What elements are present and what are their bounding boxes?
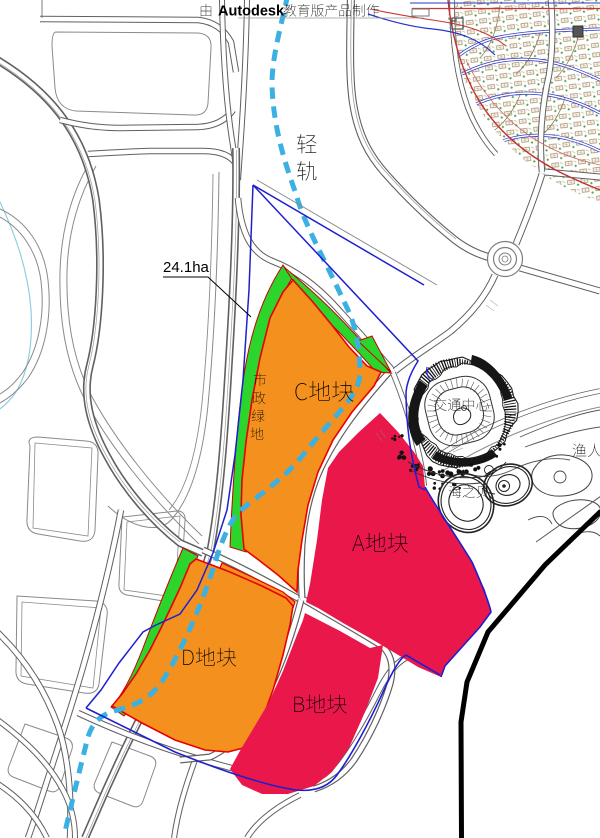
svg-text:24.1ha: 24.1ha	[163, 259, 210, 276]
svg-text:Autodesk: Autodesk	[218, 4, 285, 20]
